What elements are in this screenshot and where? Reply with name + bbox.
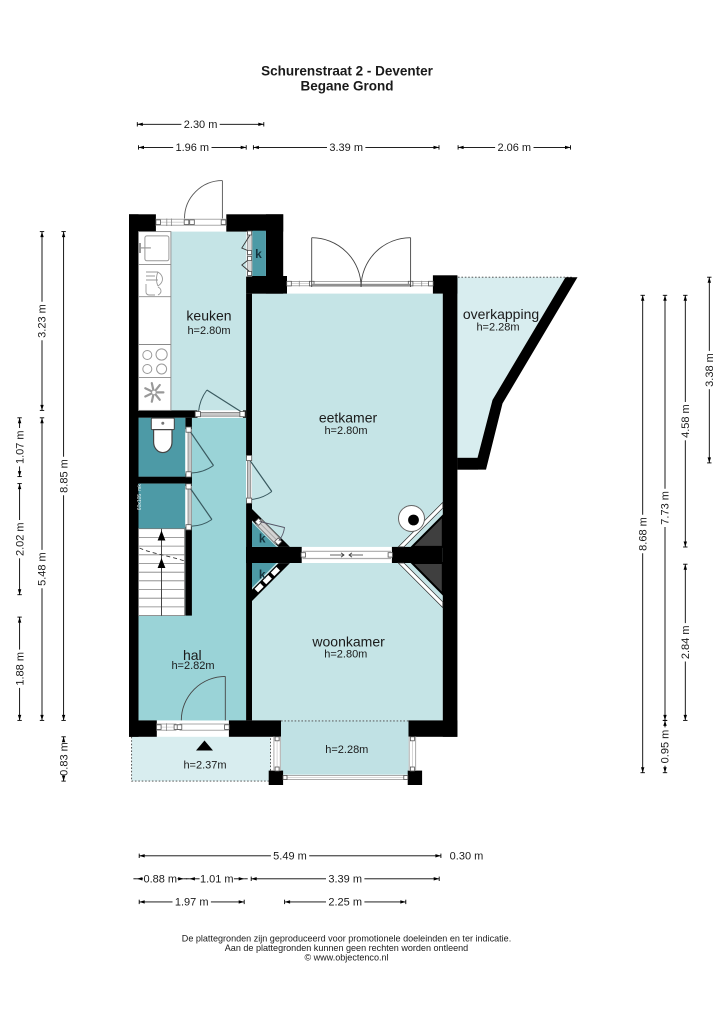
svg-text:h=2.80m: h=2.80m (324, 649, 367, 661)
svg-text:60x105: 60x105 (137, 494, 143, 511)
svg-text:0.30 m: 0.30 m (450, 851, 484, 863)
svg-text:1.01 m: 1.01 m (200, 874, 234, 886)
svg-text:2.84 m: 2.84 m (680, 625, 692, 659)
svg-text:Schurenstraat 2 - Deventer: Schurenstraat 2 - Deventer (261, 64, 434, 79)
svg-text:5.49 m: 5.49 m (273, 851, 307, 863)
svg-text:8.68 m: 8.68 m (637, 517, 649, 551)
svg-text:h=2.82m: h=2.82m (171, 660, 214, 672)
svg-text:2.25 m: 2.25 m (328, 897, 362, 909)
svg-text:h=2.28m: h=2.28m (325, 744, 368, 756)
svg-text:k: k (255, 247, 262, 261)
svg-text:2.02 m: 2.02 m (14, 522, 26, 556)
svg-text:h=2.80m: h=2.80m (324, 425, 367, 437)
svg-text:4.58 m: 4.58 m (680, 404, 692, 438)
svg-text:2.06 m: 2.06 m (497, 142, 531, 154)
svg-text:1.07 m: 1.07 m (14, 430, 26, 464)
svg-text:Aan de plattegronden kunnen ge: Aan de plattegronden kunnen geen rechten… (225, 943, 468, 953)
svg-text:3.38 m: 3.38 m (704, 353, 716, 387)
svg-text:1.97 m: 1.97 m (175, 897, 209, 909)
svg-text:3.23 m: 3.23 m (37, 304, 49, 338)
svg-text:k: k (259, 531, 266, 545)
svg-text:1.88 m: 1.88 m (14, 652, 26, 686)
svg-text:0.83 m: 0.83 m (58, 742, 70, 776)
svg-text:© www.objectenco.nl: © www.objectenco.nl (304, 953, 388, 963)
svg-text:3.39 m: 3.39 m (329, 142, 363, 154)
svg-text:woonkamer: woonkamer (311, 634, 385, 650)
svg-text:keuken: keuken (186, 308, 231, 324)
svg-text:h=2.28m: h=2.28m (476, 322, 519, 334)
svg-text:k: k (259, 568, 266, 582)
svg-text:8.85 m: 8.85 m (58, 459, 70, 493)
svg-text:2.30 m: 2.30 m (184, 119, 218, 131)
svg-text:5.48 m: 5.48 m (37, 552, 49, 586)
svg-text:1.96 m: 1.96 m (175, 142, 209, 154)
svg-text:3.39 m: 3.39 m (328, 874, 362, 886)
svg-text:eetkamer: eetkamer (319, 410, 378, 426)
svg-text:0.95 m: 0.95 m (660, 730, 672, 764)
svg-text:Begane Grond: Begane Grond (300, 79, 393, 94)
svg-text:7.73 m: 7.73 m (660, 491, 672, 525)
svg-text:h=2.80m: h=2.80m (187, 325, 230, 337)
svg-text:overkapping: overkapping (463, 306, 539, 322)
svg-text:0.88 m: 0.88 m (143, 874, 177, 886)
svg-text:De plattegronden zijn geproduc: De plattegronden zijn geproduceerd voor … (182, 934, 511, 944)
svg-text:h=2.37m: h=2.37m (183, 760, 226, 772)
svg-text:mk: mk (137, 484, 143, 491)
